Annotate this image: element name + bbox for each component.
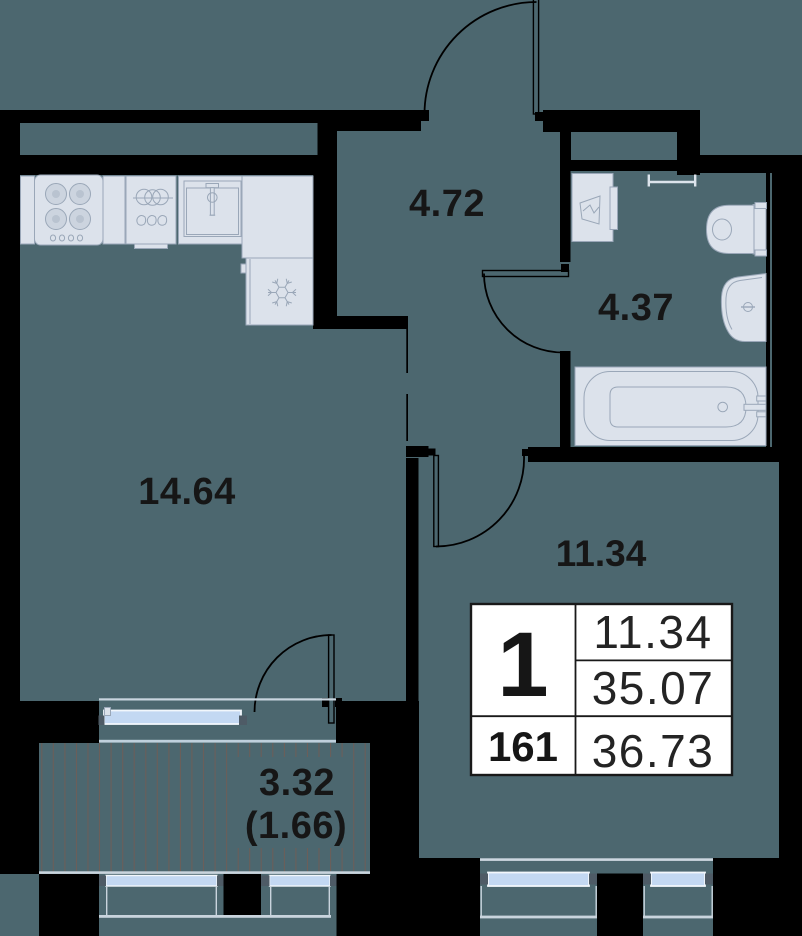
svg-text:1: 1 [497, 614, 548, 716]
svg-text:11.34: 11.34 [556, 533, 647, 574]
svg-text:11.34: 11.34 [593, 606, 712, 658]
svg-text:3.32: 3.32 [259, 762, 335, 804]
svg-text:161: 161 [488, 723, 558, 770]
svg-text:(1.66): (1.66) [245, 805, 347, 847]
svg-text:14.64: 14.64 [138, 471, 236, 513]
svg-text:4.37: 4.37 [598, 287, 674, 329]
svg-text:36.73: 36.73 [592, 725, 715, 777]
svg-text:4.72: 4.72 [409, 183, 485, 225]
svg-text:35.07: 35.07 [592, 662, 715, 714]
